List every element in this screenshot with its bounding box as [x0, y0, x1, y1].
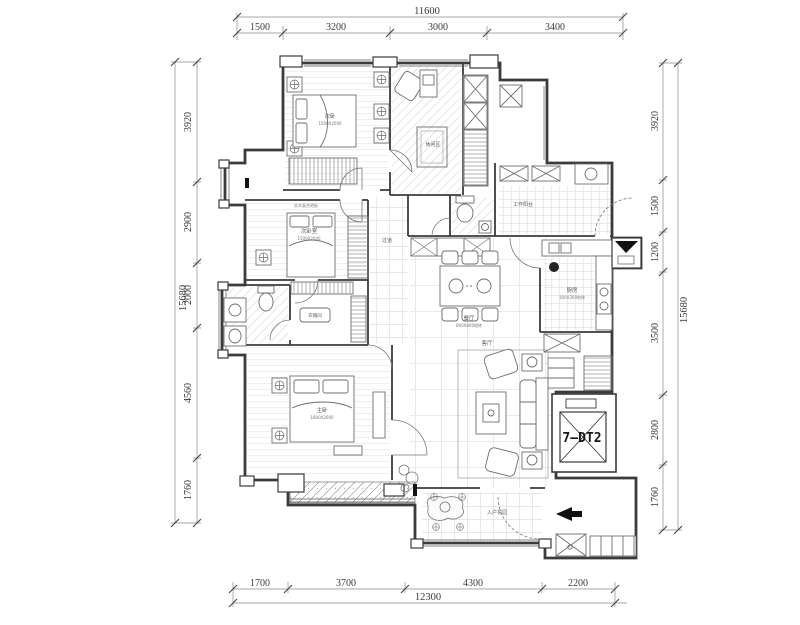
- dim-bottom-seg4: 2200: [568, 578, 588, 589]
- chair-icon: [482, 251, 498, 264]
- dim-right-seg6: 1760: [650, 487, 661, 507]
- vanity-icon: [224, 298, 246, 322]
- label-bedroom-top-size: 1500X2000: [318, 121, 342, 126]
- chair-icon: [442, 251, 458, 264]
- dim-bottom-seg1: 1700: [250, 578, 270, 589]
- duct-shaft: [612, 238, 641, 268]
- dim-top-total: 11600: [414, 6, 440, 17]
- chair-icon: [442, 308, 458, 321]
- sink-icon: [479, 221, 491, 233]
- label-closet: 衣帽间: [308, 312, 322, 319]
- dim-top-seg4: 3400: [545, 22, 565, 33]
- label-corridor: 过道: [382, 237, 392, 244]
- wardrobe-icon: [348, 216, 368, 278]
- toilet-icon: [258, 286, 274, 293]
- label-work-balcony: 工作阳台: [513, 201, 533, 208]
- toilet-icon: [456, 196, 474, 203]
- washer-icon: [575, 164, 608, 184]
- dim-right-seg3: 1200: [650, 242, 661, 262]
- dim-top-seg2: 3200: [326, 22, 346, 33]
- dim-left-seg3: 2000: [183, 285, 194, 305]
- chair-icon: [462, 251, 478, 264]
- floor-plan-page: 11600 1500 3200 3000 3400 12300 1700 370…: [0, 0, 800, 625]
- label-bedroom-top: 次卧: [324, 112, 336, 120]
- bench-icon: [334, 446, 362, 455]
- tv-cabinet-icon: [373, 392, 385, 438]
- label-kitchen: 厨房: [566, 286, 578, 294]
- dim-right-seg2: 1500: [650, 196, 661, 216]
- dim-bottom-seg2: 3700: [336, 578, 356, 589]
- dim-top-seg1: 1500: [250, 22, 270, 33]
- label-entry: 入户花园: [487, 509, 507, 516]
- label-kitchen-size: 300X300地砖: [559, 294, 585, 300]
- dim-right-seg4: 3500: [650, 323, 661, 343]
- dim-left-seg4: 4560: [183, 383, 194, 403]
- entry-arrow-icon: [556, 507, 582, 521]
- stairs-icon: [590, 536, 636, 556]
- label-bedroom-mid: 次卧室: [301, 227, 318, 235]
- stove-icon: [597, 284, 611, 314]
- label-dining: 餐厅: [463, 314, 475, 322]
- sofa-icon: [536, 378, 548, 450]
- label-living: 客厅: [481, 339, 493, 347]
- label-bedroom-mid-floor: 实木复合地板: [294, 202, 318, 208]
- wardrobe-icon: [289, 158, 357, 184]
- dim-left-seg5: 1760: [183, 480, 194, 500]
- closet-fixtures: [291, 282, 366, 342]
- dim-left-seg1: 3920: [183, 112, 194, 132]
- dim-top-seg3: 3000: [428, 22, 448, 33]
- dim-right-total: 15680: [679, 297, 690, 323]
- work-balcony-fixtures: [500, 164, 608, 184]
- label-lounge: 休闲区: [425, 141, 440, 148]
- label-master: 主卧: [316, 406, 328, 414]
- label-bedroom-mid-size: 1500X2000: [297, 236, 321, 241]
- dim-left-seg2: 2900: [183, 212, 194, 232]
- stair-lobby: [556, 534, 636, 556]
- floor-plan-canvas: 11600 1500 3200 3000 3400 12300 1700 370…: [0, 0, 800, 625]
- chair-icon: [482, 308, 498, 321]
- dim-right-seg1: 3920: [650, 111, 661, 131]
- dim-bottom-seg3: 4300: [463, 578, 483, 589]
- dim-bottom-total: 12300: [415, 592, 441, 603]
- dim-right-seg5: 2800: [650, 420, 661, 440]
- label-dining-size: 800X800地砖: [456, 322, 482, 328]
- label-master-size: 1800X2000: [310, 415, 334, 420]
- label-elevator: 7—DT2: [562, 431, 601, 446]
- coffee-table-icon: [476, 392, 506, 434]
